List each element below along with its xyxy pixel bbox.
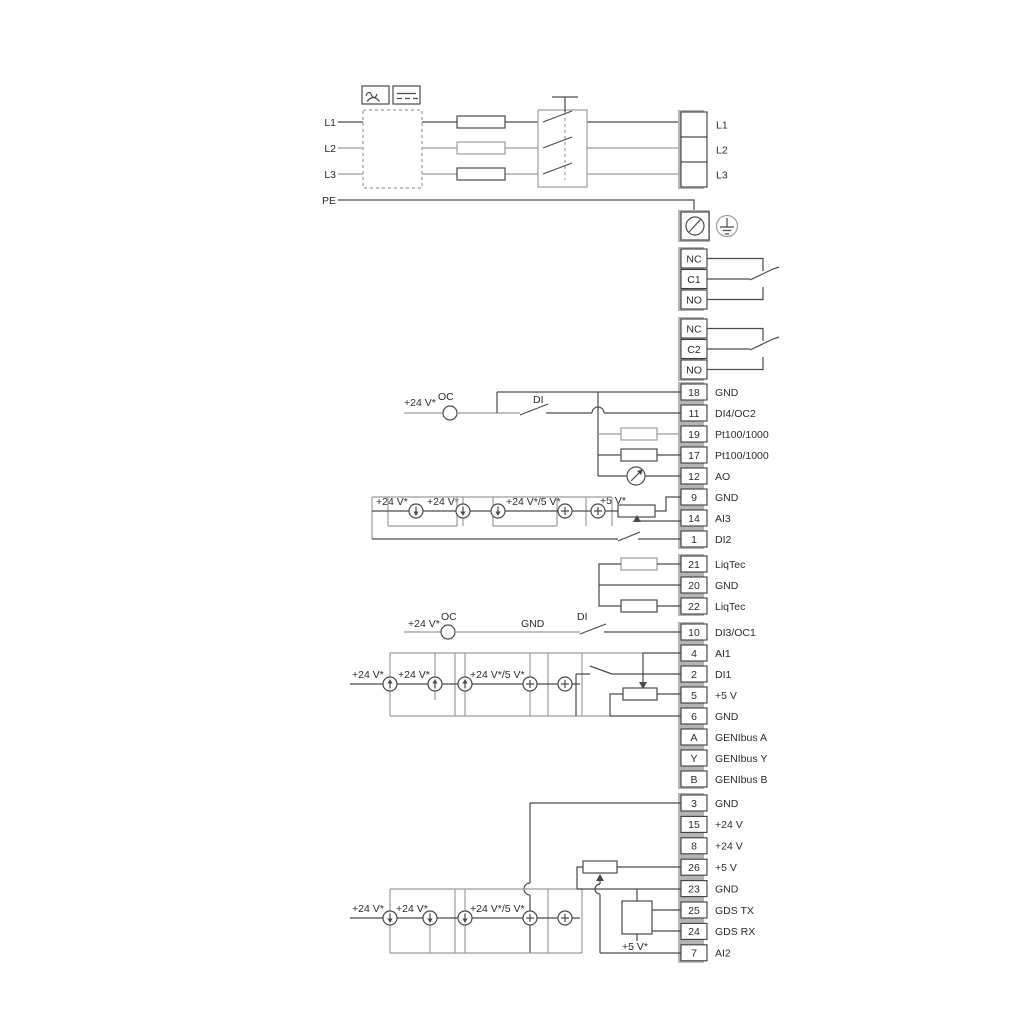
terminal-number: 15 xyxy=(688,819,700,831)
wire-gnd9 xyxy=(655,497,681,511)
terminal-number: NO xyxy=(686,364,702,376)
terminal-cell xyxy=(681,112,707,137)
terminal-number: 14 xyxy=(688,513,700,525)
terminal-label: DI3/OC1 xyxy=(715,627,756,639)
terminal-label: +5 V xyxy=(715,862,737,874)
terminal-number: C2 xyxy=(687,344,701,356)
switch-icon xyxy=(618,532,640,541)
current-source-icon xyxy=(383,677,397,691)
oc-label: OC xyxy=(441,611,457,623)
terminal-number: 8 xyxy=(691,841,697,853)
current-source-icon xyxy=(456,504,470,518)
plus24v-5v-label: +24 V*/5 V* xyxy=(506,496,561,508)
terminal-cell xyxy=(681,162,707,187)
wiring-diagram: L1 L2 L3 PE xyxy=(0,0,1024,1024)
phase-l1-label: L1 xyxy=(324,117,336,129)
terminal-number: 9 xyxy=(691,492,697,504)
terminal-number: 10 xyxy=(688,627,700,639)
io-section-1: 18GND11DI4/OC219Pt100/100017Pt100/100012… xyxy=(372,382,769,549)
mains-output-terminal-block: L1L2L3 xyxy=(678,110,728,189)
pe-terminal-icon xyxy=(678,210,710,242)
phase-l3-label: L3 xyxy=(324,169,336,181)
gds-sensor-box xyxy=(622,889,681,941)
current-source-icon xyxy=(423,911,437,925)
fuse-icon xyxy=(457,116,505,128)
relay2-wires xyxy=(707,329,763,370)
plus24v-5v-label: +24 V*/5 V* xyxy=(470,903,525,915)
plus24v-5v-label: +24 V*/5 V* xyxy=(470,669,525,681)
plus24v-label: +24 V* xyxy=(427,496,459,508)
terminal-label: LiqTec xyxy=(715,559,745,571)
terminal-label: GENIbus Y xyxy=(715,753,767,765)
terminal-number: 17 xyxy=(688,450,700,462)
group-brackets xyxy=(390,889,582,953)
relay1-terminal-block: NCC1NO xyxy=(678,247,707,311)
di-label: DI xyxy=(577,611,588,623)
terminal-number: 21 xyxy=(688,559,700,571)
terminal-label: AI3 xyxy=(715,513,731,525)
terminal-number: 23 xyxy=(688,883,700,895)
voltage-source-icon xyxy=(558,911,572,925)
terminal-label: +24 V xyxy=(715,841,743,853)
terminal-label: GENIbus B xyxy=(715,774,768,786)
plus24v-label: +24 V* xyxy=(404,397,436,409)
relay2-terminal-block: NCC2NO xyxy=(678,317,707,381)
plus24v-label: +24 V* xyxy=(396,903,428,915)
dc-symbol-icon xyxy=(393,86,420,104)
plus24v-label: +24 V* xyxy=(376,496,408,508)
terminal-label: DI2 xyxy=(715,534,732,546)
open-collector-icon xyxy=(443,406,457,420)
terminal-number: 12 xyxy=(688,471,700,483)
terminal-label: L2 xyxy=(716,144,728,156)
converter-outline xyxy=(363,110,422,188)
open-collector-icon xyxy=(441,625,455,639)
terminal-number: 19 xyxy=(688,429,700,441)
terminal-label: GDS TX xyxy=(715,905,754,917)
group-brackets xyxy=(372,497,612,539)
io-section-2: 10DI3/OC14AI12DI15+5 V6GNDAGENIbus AYGEN… xyxy=(350,611,768,789)
terminal-number: 3 xyxy=(691,798,697,810)
switch-icon xyxy=(580,624,606,634)
ac-symbol-icon xyxy=(362,86,389,104)
terminal-number: NC xyxy=(686,253,702,265)
terminal-label: DI4/OC2 xyxy=(715,408,756,420)
terminal-number: 18 xyxy=(688,387,700,399)
plus24v-label: +24 V* xyxy=(408,618,440,630)
terminal-label: Pt100/1000 xyxy=(715,450,769,462)
analog-output-icon xyxy=(627,467,645,485)
oc-label: OC xyxy=(438,391,454,403)
ai1-source-row: +24 V* +24 V* +24 V*/5 V* xyxy=(350,653,681,716)
terminal-number: 25 xyxy=(688,905,700,917)
potentiometer-icon xyxy=(623,688,657,700)
fuse-icon xyxy=(457,168,505,180)
plus24v-label: +24 V* xyxy=(398,669,430,681)
io3-terminal-block: 3GND15+24 V8+24 V26+5 V23GND25GDS TX24GD… xyxy=(678,793,755,963)
relay1-wires xyxy=(707,259,763,300)
potentiometer-icon xyxy=(583,861,617,873)
main-switch-icon xyxy=(538,97,587,187)
terminal-number: 2 xyxy=(691,669,697,681)
liqtec-section: 21LiqTec20GND22LiqTec xyxy=(599,554,745,616)
ai2-source-row: +24 V* +24 V* +24 V*/5 V* +5 V* xyxy=(350,861,681,953)
voltage-source-icon xyxy=(558,504,572,518)
relay2-section: NCC2NO xyxy=(678,317,779,381)
current-source-icon xyxy=(409,504,423,518)
phase-l2-label: L2 xyxy=(324,143,336,155)
liqtec-terminal-block: 21LiqTec20GND22LiqTec xyxy=(678,554,745,616)
terminal-label: L1 xyxy=(716,119,728,131)
terminal-number: NC xyxy=(686,323,702,335)
terminal-label: GND xyxy=(715,883,739,895)
terminal-number: B xyxy=(690,774,697,786)
terminal-label: LiqTec xyxy=(715,601,745,613)
current-source-icon xyxy=(458,677,472,691)
voltage-source-icon xyxy=(558,677,572,691)
terminal-number: 20 xyxy=(688,580,700,592)
terminal-number: 24 xyxy=(688,926,700,938)
terminal-label: GDS RX xyxy=(715,926,755,938)
plus24v-label: +24 V* xyxy=(352,903,384,915)
terminal-label: +5 V xyxy=(715,690,737,702)
resistor-icon xyxy=(621,449,657,461)
current-source-icon xyxy=(428,677,442,691)
terminal-label: AO xyxy=(715,471,730,483)
terminal-label: GND xyxy=(715,387,739,399)
relay1-section: NCC1NO xyxy=(678,247,779,311)
terminal-label: GND xyxy=(715,711,739,723)
terminal-number: 6 xyxy=(691,711,697,723)
io-section-3: 3GND15+24 V8+24 V26+5 V23GND25GDS TX24GD… xyxy=(350,793,755,963)
voltage-source-icon xyxy=(591,504,605,518)
terminal-number: A xyxy=(690,732,697,744)
gnd-label: GND xyxy=(521,618,545,630)
wire-ai1 xyxy=(643,653,681,682)
mains-input-section: L1 L2 L3 PE xyxy=(322,86,738,242)
terminal-label: GENIbus A xyxy=(715,732,767,744)
terminal-label: GND xyxy=(715,492,739,504)
terminal-label: Pt100/1000 xyxy=(715,429,769,441)
current-source-icon xyxy=(491,504,505,518)
terminal-number: Y xyxy=(690,753,697,765)
wire-di4 xyxy=(546,407,681,413)
wiper-arrow-icon xyxy=(596,874,604,881)
terminal-number: 7 xyxy=(691,948,697,960)
potentiometer-icon xyxy=(618,505,655,517)
io1-terminal-block: 18GND11DI4/OC219Pt100/100017Pt100/100012… xyxy=(678,382,769,549)
resistor-icon xyxy=(621,558,657,570)
terminal-label: GND xyxy=(715,580,739,592)
terminal-number: 1 xyxy=(691,534,697,546)
plus5v-label: +5 V* xyxy=(622,941,648,953)
terminal-label: +24 V xyxy=(715,819,743,831)
terminal-label: GND xyxy=(715,798,739,810)
terminal-number: NO xyxy=(686,294,702,306)
voltage-source-icon xyxy=(523,911,537,925)
io2-terminal-block: 10DI3/OC14AI12DI15+5 V6GNDAGENIbus AYGEN… xyxy=(678,622,768,789)
pe-label: PE xyxy=(322,195,336,207)
fuse-icon xyxy=(457,142,505,154)
ai3-source-row: +24 V* +24 V* +24 V*/5 V* +5 V* xyxy=(372,495,681,541)
current-source-icon xyxy=(458,911,472,925)
terminal-number: 11 xyxy=(689,408,700,420)
current-source-icon xyxy=(383,911,397,925)
terminal-label: AI1 xyxy=(715,648,731,660)
plus24v-label: +24 V* xyxy=(352,669,384,681)
changeover-contact-icon xyxy=(750,337,779,350)
earth-icon xyxy=(717,216,738,237)
resistor-icon xyxy=(621,600,657,612)
terminal-number: C1 xyxy=(687,274,701,286)
wiring-diagram-page: L1 L2 L3 PE xyxy=(0,0,1024,1024)
changeover-contact-icon xyxy=(750,267,779,280)
di-label: DI xyxy=(533,394,544,406)
terminal-number: 4 xyxy=(691,648,697,660)
terminal-label: AI2 xyxy=(715,948,731,960)
terminal-label: DI1 xyxy=(715,669,732,681)
resistor-icon xyxy=(621,428,657,440)
terminal-label: L3 xyxy=(716,169,728,181)
terminal-cell xyxy=(681,137,707,162)
wire-gnd18 xyxy=(497,392,681,413)
wire-pe xyxy=(338,200,694,212)
terminal-number: 22 xyxy=(688,601,700,613)
voltage-source-icon xyxy=(523,677,537,691)
terminal-number: 5 xyxy=(691,690,697,702)
terminal-number: 26 xyxy=(688,862,700,874)
